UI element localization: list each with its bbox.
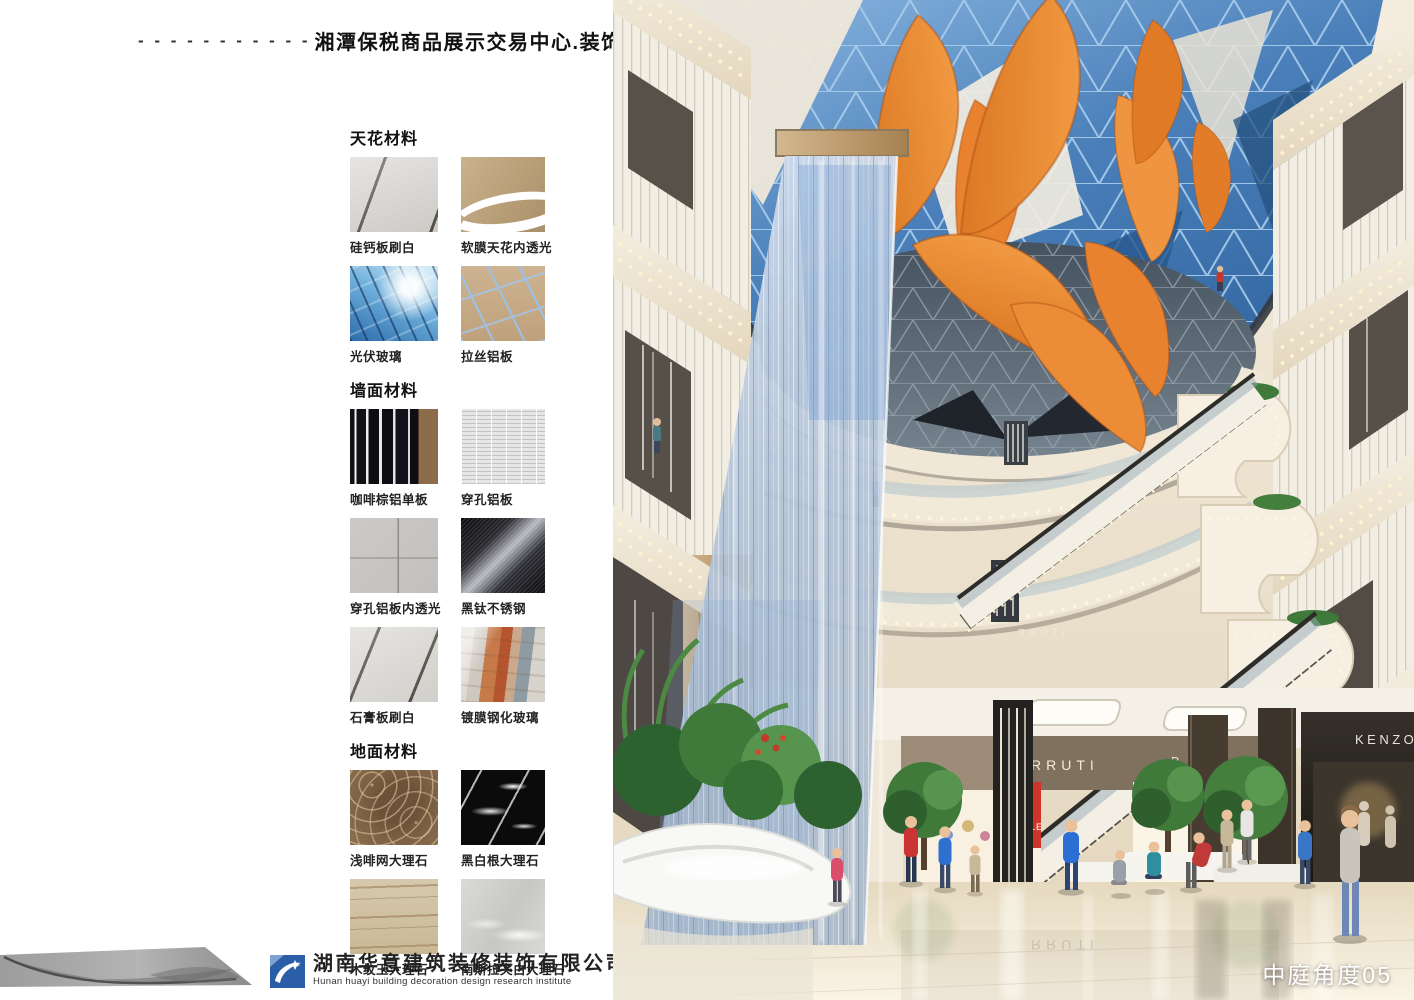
material-swatch — [461, 770, 545, 845]
material-label: 黑钛不锈钢 — [461, 598, 545, 617]
material-section-header: 地面材料 — [350, 738, 560, 762]
material-swatch — [350, 770, 438, 845]
company-name-cn: 湖南华意建筑装修装饰有限公司 — [313, 953, 628, 975]
material-label: 石膏板刷白 — [350, 707, 438, 726]
material-item: 光伏玻璃 — [350, 266, 438, 375]
storefront-sign-kenzo: KENZO — [1355, 732, 1414, 747]
material-swatch — [461, 879, 545, 954]
material-item: 穿孔铝板内透光 — [350, 518, 438, 627]
upper-storefront-sign: RRUTI — [1018, 628, 1069, 639]
title-dash-line: - - - - - - - - - - - — [138, 31, 311, 51]
material-item: 软膜天花内透光 — [461, 157, 545, 266]
material-item: 黑白根大理石 — [461, 770, 545, 879]
material-swatch — [350, 157, 438, 232]
material-item: 石膏板刷白 — [350, 627, 438, 736]
company-block: 湖南华意建筑装修装饰有限公司 Hunan huayi building deco… — [270, 953, 628, 990]
material-label: 浅啡网大理石 — [350, 850, 438, 869]
material-label: 黑白根大理石 — [461, 850, 545, 869]
material-swatch — [461, 627, 545, 702]
materials-panel: 天花材料硅钙板刷白软膜天花内透光光伏玻璃拉丝铝板墙面材料咖啡棕铝单板穿孔铝板穿孔… — [350, 125, 560, 990]
balcony-person — [653, 418, 661, 453]
material-item: 黑钛不锈钢 — [461, 518, 545, 627]
material-item: 镀膜钢化玻璃 — [461, 627, 545, 736]
material-label: 咖啡棕铝单板 — [350, 489, 438, 508]
material-item: 硅钙板刷白 — [350, 157, 438, 266]
atrium-rendering-scene: RRUTI BTA SALE KENZO — [613, 0, 1414, 1000]
material-label: 硅钙板刷白 — [350, 237, 438, 256]
title-row: - - - - - - - - - - - 湘潭保税商品展示交易中心.装饰设计 — [138, 26, 666, 55]
material-swatch — [350, 627, 438, 702]
material-section-header: 墙面材料 — [350, 377, 560, 401]
material-swatch — [461, 518, 545, 593]
material-swatch — [461, 409, 545, 484]
material-item: 穿孔铝板 — [461, 409, 545, 518]
material-swatch — [461, 157, 545, 232]
atrium-rendering: RRUTI BTA SALE KENZO — [613, 0, 1414, 1000]
material-section-header: 天花材料 — [350, 125, 560, 149]
material-label: 拉丝铝板 — [461, 346, 545, 365]
material-swatch — [461, 266, 545, 341]
view-angle-label: 中庭角度05 — [1262, 956, 1392, 990]
material-swatch — [350, 409, 438, 484]
material-item: 浅啡网大理石 — [350, 770, 438, 879]
material-grid: 硅钙板刷白软膜天花内透光光伏玻璃拉丝铝板 — [350, 157, 560, 375]
material-label: 光伏玻璃 — [350, 346, 438, 365]
presentation-board: - - - - - - - - - - - 湘潭保税商品展示交易中心.装饰设计 … — [0, 0, 1414, 1000]
material-label: 穿孔铝板内透光 — [350, 598, 438, 617]
footer-swoosh-graphic — [0, 945, 256, 995]
material-swatch — [350, 266, 438, 341]
material-swatch — [350, 518, 438, 593]
balcony-person-red — [1217, 266, 1224, 291]
company-text: 湖南华意建筑装修装饰有限公司 Hunan huayi building deco… — [313, 953, 628, 987]
material-swatch — [350, 879, 438, 954]
company-logo-icon — [270, 953, 305, 990]
material-item: 拉丝铝板 — [461, 266, 545, 375]
material-grid: 咖啡棕铝单板穿孔铝板穿孔铝板内透光黑钛不锈钢石膏板刷白镀膜钢化玻璃 — [350, 409, 560, 736]
company-name-en: Hunan huayi building decoration design r… — [313, 976, 628, 987]
material-label: 软膜天花内透光 — [461, 237, 545, 256]
storefront-sign-cerruti: RRUTI — [1031, 757, 1099, 773]
material-label: 穿孔铝板 — [461, 489, 545, 508]
material-label: 镀膜钢化玻璃 — [461, 707, 545, 726]
material-item: 咖啡棕铝单板 — [350, 409, 438, 518]
